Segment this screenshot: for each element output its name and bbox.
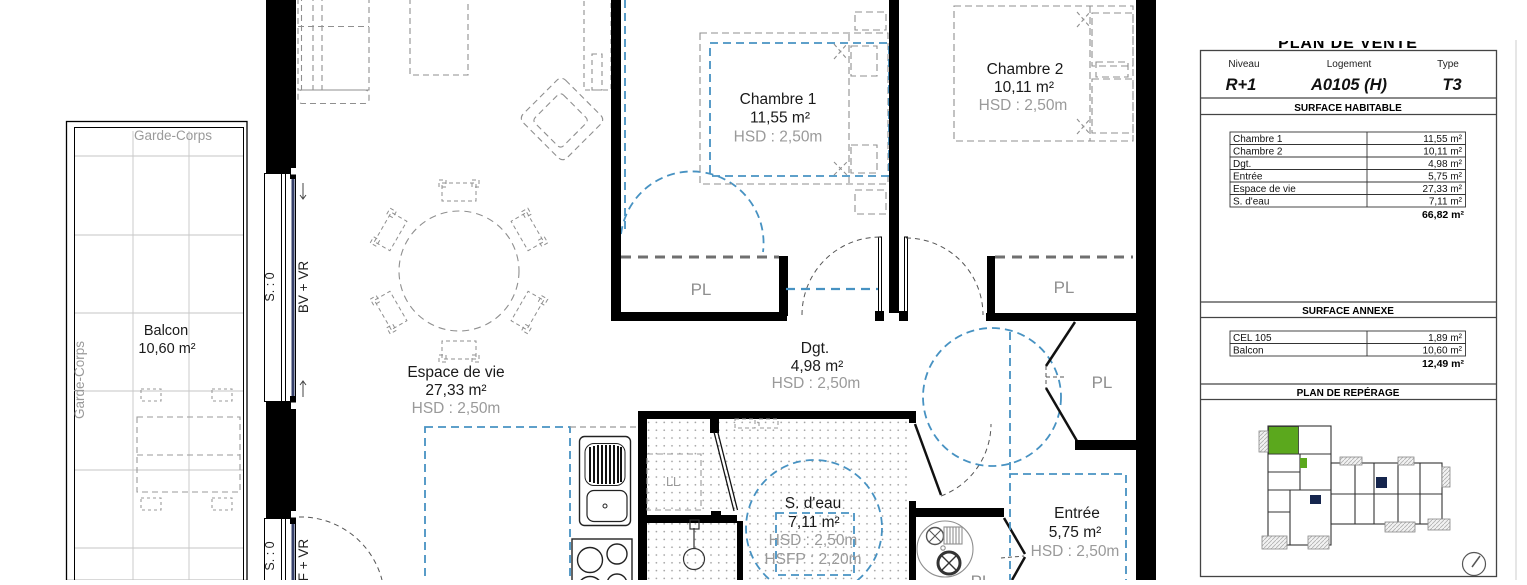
svg-text:PL: PL (1092, 373, 1113, 392)
svg-text:Dgt.: Dgt. (1233, 159, 1251, 170)
svg-text:HSD : 2,50m: HSD : 2,50m (772, 375, 861, 392)
svg-text:4,98 m²: 4,98 m² (1428, 159, 1463, 170)
svg-text:Logement: Logement (1327, 59, 1372, 70)
svg-text:S. d'eau: S. d'eau (1233, 197, 1269, 208)
svg-text:Balcon: Balcon (144, 323, 188, 339)
svg-text:Chambre 1: Chambre 1 (1233, 134, 1283, 145)
svg-text:PL: PL (971, 572, 992, 580)
svg-text:Type: Type (1437, 59, 1459, 70)
svg-text:10,11 m²: 10,11 m² (994, 79, 1054, 96)
svg-text:27,33 m²: 27,33 m² (1423, 184, 1463, 195)
svg-text:S. : 0: S. : 0 (263, 541, 277, 570)
svg-text:Espace de vie: Espace de vie (407, 364, 504, 381)
svg-text:66,82 m²: 66,82 m² (1422, 209, 1465, 221)
svg-text:Chambre 2: Chambre 2 (1233, 147, 1283, 158)
svg-text:Entrée: Entrée (1233, 172, 1263, 183)
svg-text:SURFACE HABITABLE: SURFACE HABITABLE (1294, 103, 1402, 114)
svg-text:Espace de vie: Espace de vie (1233, 184, 1296, 195)
svg-text:Entrée: Entrée (1054, 505, 1100, 522)
svg-text:S. d'eau: S. d'eau (785, 495, 841, 512)
svg-text:4,98 m²: 4,98 m² (791, 358, 844, 375)
svg-text:12,49 m²: 12,49 m² (1422, 358, 1465, 370)
svg-text:A0105 (H): A0105 (H) (1310, 76, 1388, 94)
svg-text:Balcon: Balcon (1233, 346, 1264, 357)
svg-text:LL: LL (666, 475, 680, 489)
svg-text:27,33 m²: 27,33 m² (425, 382, 486, 399)
svg-text:Garde-Corps: Garde-Corps (72, 341, 87, 419)
svg-text:10,11 m²: 10,11 m² (1423, 147, 1462, 158)
svg-text:SURFACE ANNEXE: SURFACE ANNEXE (1302, 306, 1394, 317)
svg-text:PL: PL (1054, 278, 1075, 297)
svg-text:11,55 m²: 11,55 m² (1423, 134, 1462, 145)
svg-text:HSD : 2,50m: HSD : 2,50m (412, 400, 501, 417)
svg-text:Niveau: Niveau (1228, 59, 1259, 70)
svg-text:CEL 105: CEL 105 (1233, 333, 1272, 344)
svg-text:BV + VR: BV + VR (296, 261, 311, 313)
svg-text:PLAN DE REPÉRAGE: PLAN DE REPÉRAGE (1297, 386, 1400, 399)
svg-text:R+1: R+1 (1226, 76, 1257, 94)
svg-text:1,89 m²: 1,89 m² (1428, 333, 1463, 344)
svg-text:Chambre 2: Chambre 2 (987, 61, 1064, 78)
svg-text:10,60 m²: 10,60 m² (1423, 346, 1463, 357)
svg-text:T3: T3 (1442, 76, 1461, 94)
svg-text:PL: PL (691, 280, 712, 299)
svg-text:Chambre 1: Chambre 1 (740, 91, 817, 108)
svg-text:HSD : 2,50m: HSD : 2,50m (734, 129, 823, 146)
svg-text:HSFP : 2,20m: HSFP : 2,20m (764, 551, 861, 568)
svg-text:10,60 m²: 10,60 m² (138, 341, 195, 357)
svg-text:HSD : 2,50m: HSD : 2,50m (979, 97, 1068, 114)
svg-text:HSD : 2,50m: HSD : 2,50m (1031, 543, 1120, 560)
svg-text:Dgt.: Dgt. (801, 340, 829, 357)
svg-text:S. : 0: S. : 0 (263, 272, 277, 301)
svg-text:5,75 m²: 5,75 m² (1049, 524, 1102, 541)
svg-text:7,11 m²: 7,11 m² (788, 514, 839, 531)
svg-text:5,75 m²: 5,75 m² (1428, 172, 1463, 183)
svg-text:F + VR: F + VR (296, 539, 311, 580)
svg-text:7,11 m²: 7,11 m² (1429, 197, 1463, 208)
svg-text:HSD : 2,50m: HSD : 2,50m (769, 532, 858, 549)
svg-text:Garde-Corps: Garde-Corps (134, 128, 212, 143)
svg-text:11,55 m²: 11,55 m² (750, 110, 810, 127)
